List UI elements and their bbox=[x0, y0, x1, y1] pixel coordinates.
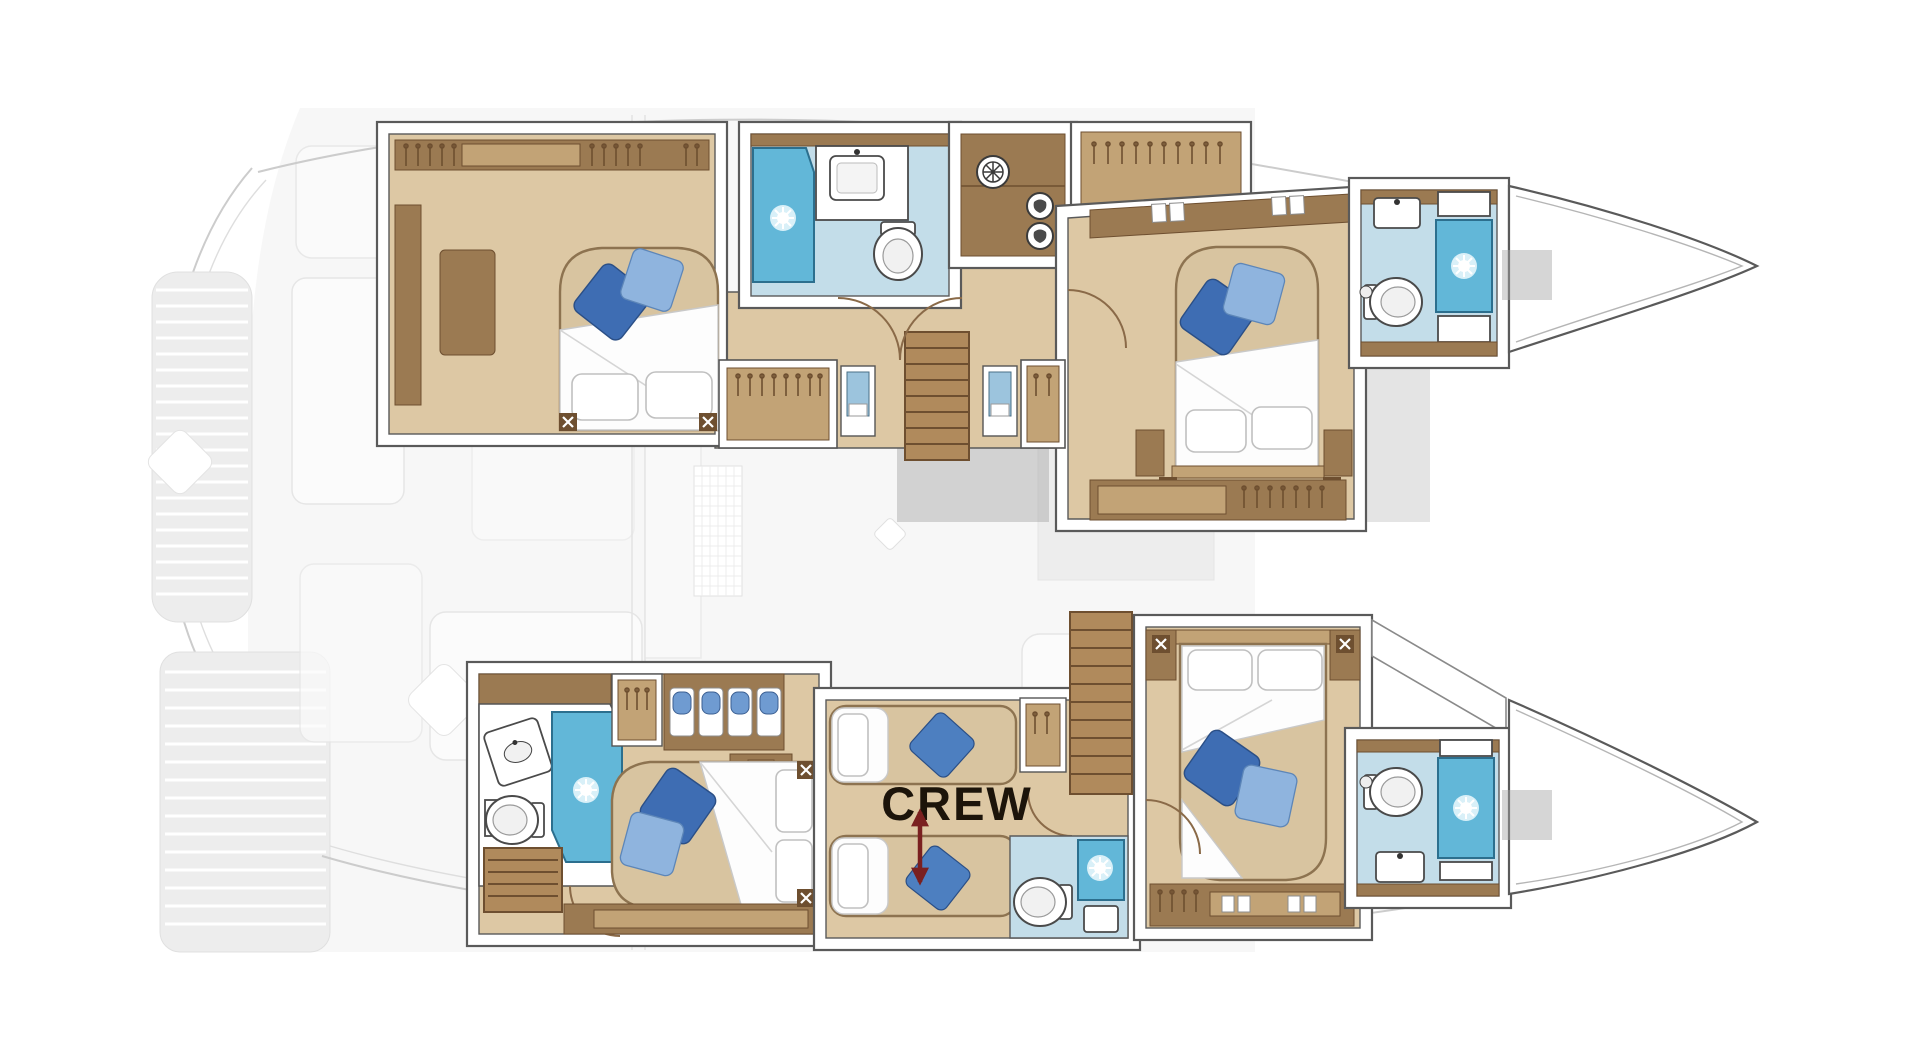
double-bed-upper-left bbox=[560, 247, 718, 430]
window-mark bbox=[1336, 635, 1354, 653]
crew-bunk-bottom bbox=[830, 836, 1016, 916]
toilet bbox=[1364, 278, 1422, 326]
window-mark bbox=[559, 413, 577, 431]
toilet bbox=[874, 222, 922, 280]
bathroom-upper-right bbox=[1349, 178, 1509, 368]
hanger-locker bbox=[612, 674, 662, 746]
cabin-lower-right bbox=[1134, 615, 1372, 940]
pillow bbox=[1252, 407, 1312, 449]
shower-head-icon bbox=[1087, 855, 1113, 881]
wardrobe-bottom bbox=[1090, 480, 1346, 520]
sink bbox=[1084, 906, 1118, 932]
vanity-unit bbox=[983, 366, 1017, 436]
cabin-lower-left bbox=[467, 662, 831, 946]
pillow bbox=[1186, 410, 1246, 452]
toilet-brush bbox=[1360, 776, 1372, 788]
double-bed-upper-right bbox=[1172, 247, 1324, 478]
deck-hatch-grid bbox=[694, 466, 742, 596]
toilet bbox=[486, 796, 544, 844]
lower-hull: CREW bbox=[467, 612, 1757, 950]
pillow bbox=[838, 714, 868, 776]
cabin-upper-right bbox=[1056, 186, 1366, 531]
pillow bbox=[838, 844, 868, 908]
crew-locker bbox=[1020, 698, 1066, 772]
window-mark bbox=[1152, 635, 1170, 653]
side-cabinet bbox=[395, 205, 421, 405]
washer-icon bbox=[1027, 193, 1053, 219]
window-mark bbox=[699, 413, 717, 431]
crew-label: CREW bbox=[881, 777, 1033, 830]
shower-head-icon bbox=[1451, 253, 1477, 279]
catamaran-lower-deck-plan: CREW bbox=[0, 0, 1920, 1045]
bathroom-lower-right bbox=[1345, 728, 1511, 908]
vanity-unit bbox=[841, 366, 875, 436]
upper-bow bbox=[1502, 186, 1757, 352]
window-mark bbox=[797, 889, 815, 907]
cabin-upper-left bbox=[377, 122, 727, 446]
pillow bbox=[646, 372, 712, 418]
bedside-table bbox=[1136, 430, 1164, 476]
towel-shelf bbox=[664, 674, 784, 750]
hull-side-band bbox=[1372, 620, 1506, 734]
helm-vent-icon bbox=[977, 156, 1009, 188]
crew-bathroom bbox=[1010, 836, 1128, 938]
pillow bbox=[572, 374, 638, 420]
stairs-lower-left bbox=[484, 848, 562, 912]
crew-bunk-top bbox=[830, 706, 1016, 784]
stairs-lower-hull bbox=[1070, 612, 1132, 794]
shower-head-icon bbox=[770, 205, 796, 231]
wardrobe-bottom bbox=[1150, 884, 1354, 926]
washer-icon bbox=[1027, 223, 1053, 249]
bedside-table bbox=[1324, 430, 1352, 476]
lower-bow bbox=[1502, 700, 1757, 894]
pillow bbox=[776, 770, 812, 832]
toilet bbox=[1014, 878, 1072, 926]
shower-head-icon bbox=[573, 777, 599, 803]
toilet-brush bbox=[1360, 286, 1372, 298]
pillow bbox=[1188, 650, 1252, 690]
deco-pillow-light bbox=[1234, 764, 1299, 829]
shower-head-icon bbox=[1453, 795, 1479, 821]
yacht-floor-plan: CREW bbox=[0, 0, 1920, 1045]
double-bed-lower-left bbox=[612, 762, 818, 908]
window-mark bbox=[797, 761, 815, 779]
pillow bbox=[1258, 650, 1322, 690]
vanity-desk bbox=[440, 250, 495, 355]
toilet bbox=[1364, 768, 1422, 816]
